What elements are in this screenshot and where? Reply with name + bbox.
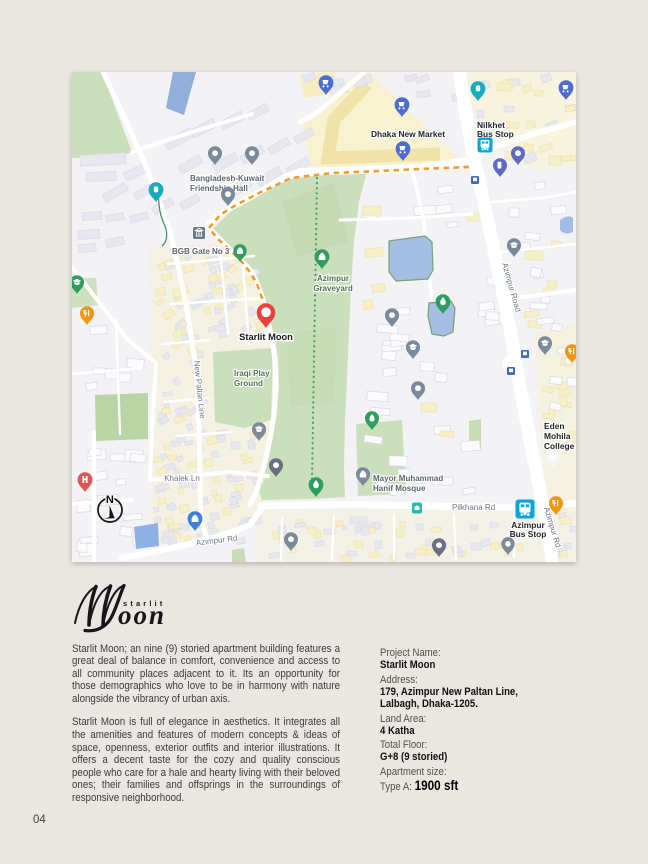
svg-text:Hanif Mosque: Hanif Mosque bbox=[373, 484, 426, 493]
svg-text:Azimpur: Azimpur bbox=[317, 274, 349, 283]
svg-text:Starlit Moon: Starlit Moon bbox=[239, 332, 293, 342]
svg-text:oon: oon bbox=[118, 600, 166, 630]
svg-text:Bus Stop: Bus Stop bbox=[510, 529, 547, 539]
svg-text:Pilkhana Rd: Pilkhana Rd bbox=[452, 503, 495, 512]
svg-text:Mayor Muhammad: Mayor Muhammad bbox=[373, 474, 443, 483]
svg-text:BGB Gate No 3: BGB Gate No 3 bbox=[172, 247, 230, 256]
svg-text:Dhaka New Market: Dhaka New Market bbox=[371, 129, 445, 139]
svg-text:Bangladesh-Kuwait: Bangladesh-Kuwait bbox=[190, 174, 265, 183]
svg-text:Friendship Hall: Friendship Hall bbox=[190, 184, 248, 193]
svg-text:College: College bbox=[544, 441, 575, 451]
svg-text:N: N bbox=[106, 494, 114, 506]
svg-text:Ground: Ground bbox=[234, 379, 263, 388]
svg-text:Graveyard: Graveyard bbox=[313, 284, 353, 293]
svg-text:Iraqi Play: Iraqi Play bbox=[234, 369, 270, 378]
svg-text:Mohila: Mohila bbox=[544, 431, 571, 441]
svg-text:Khalek Ln: Khalek Ln bbox=[164, 474, 200, 483]
svg-text:Eden: Eden bbox=[544, 421, 564, 431]
